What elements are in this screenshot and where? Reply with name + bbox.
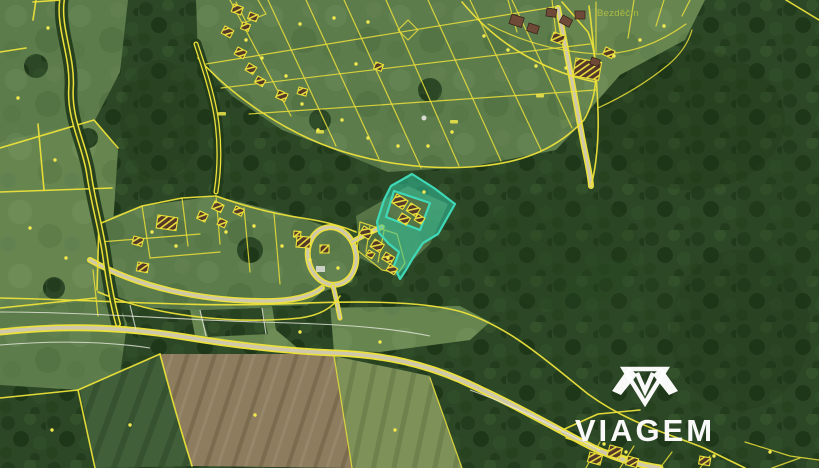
map-viewport[interactable]: Bezděčín VIAGEM: [0, 0, 819, 468]
place-label: Bezděčín: [597, 8, 639, 19]
white-structure: [422, 116, 427, 121]
watermark-brand-text: VIAGEM: [575, 413, 715, 448]
satellite-map[interactable]: Bezděčín VIAGEM: [0, 0, 819, 468]
white-structure: [316, 266, 325, 272]
